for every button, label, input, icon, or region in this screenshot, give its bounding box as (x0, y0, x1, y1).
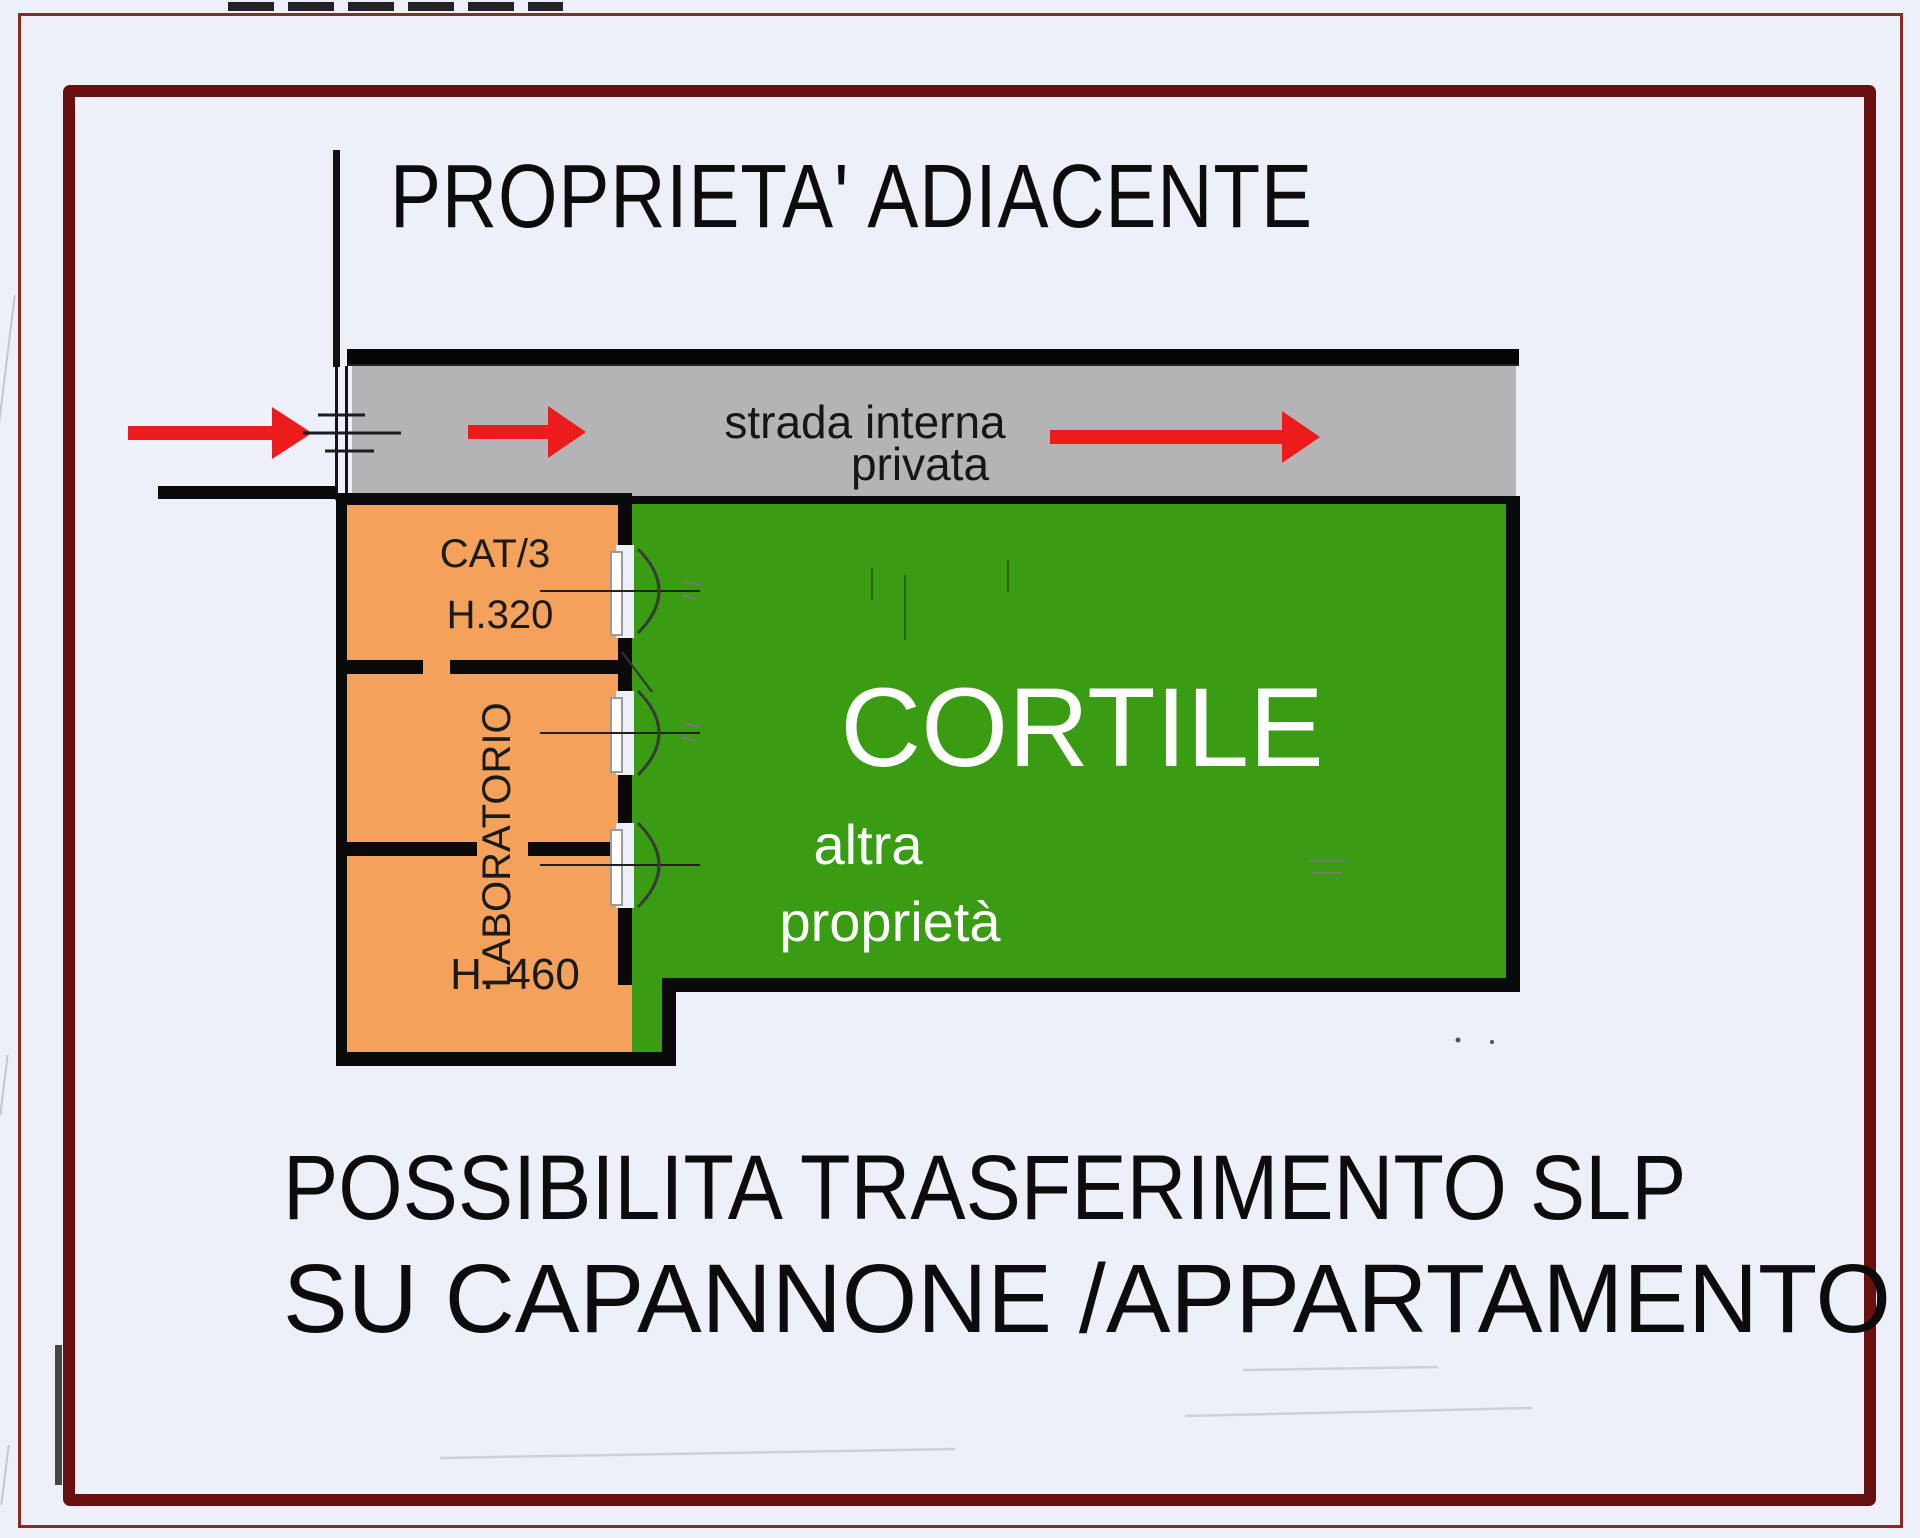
courtyard-owner-line1: altra (768, 817, 968, 873)
wall-workshop-bottom (336, 1052, 676, 1066)
wall-internal2-b (528, 842, 618, 856)
floor-plan-page: PROPRIETA' ADIACENTE strada interna priv… (0, 0, 1920, 1538)
wall-internal1-b (450, 660, 618, 674)
footer-line2: SU CAPANNONE /APPARTAMENTO (283, 1243, 1891, 1355)
street-edge-line (158, 486, 336, 499)
wall-boundary-seg3 (618, 775, 632, 823)
workshop-height-bottom-label: H. 460 (415, 952, 615, 998)
wall-courtyard-bottom (662, 978, 1520, 992)
courtyard-owner-line2: proprietà (765, 894, 1015, 950)
scan-artifact-left (0, 295, 19, 454)
wall-boundary-seg1 (618, 497, 632, 545)
wall-workshop-left (336, 493, 347, 1066)
door-leaf (610, 829, 623, 906)
boundary-double-line (335, 366, 338, 500)
scan-artifact-left (0, 1055, 12, 1115)
footer-line1: POSSIBILITA TRASFERIMENTO SLP (283, 1136, 1686, 1241)
page-title: PROPRIETA' ADIACENTE (390, 146, 1313, 249)
workshop-height-top-label: H.320 (405, 594, 595, 636)
property-boundary-line (333, 150, 340, 367)
workshop-category-label: CAT/3 (400, 533, 590, 575)
wall-internal2-a (347, 842, 477, 856)
wall-internal1-a (347, 660, 423, 674)
road-top-wall (347, 349, 1519, 366)
wall-courtyard-top (618, 496, 1520, 504)
road-label-line2: privata (770, 441, 1070, 487)
door-leaf (610, 697, 623, 773)
wall-boundary-seg2 (618, 638, 632, 691)
wall-workshop-top (336, 493, 632, 505)
wall-boundary-seg4 (618, 908, 632, 985)
scan-artifact-top (228, 2, 563, 11)
boundary-double-line (345, 366, 348, 500)
wall-courtyard-right (1506, 496, 1520, 992)
wall-courtyard-step (662, 978, 676, 1066)
courtyard-title: CORTILE (832, 672, 1332, 784)
door-leaf (610, 551, 623, 636)
scan-artifact-left (0, 1445, 12, 1505)
